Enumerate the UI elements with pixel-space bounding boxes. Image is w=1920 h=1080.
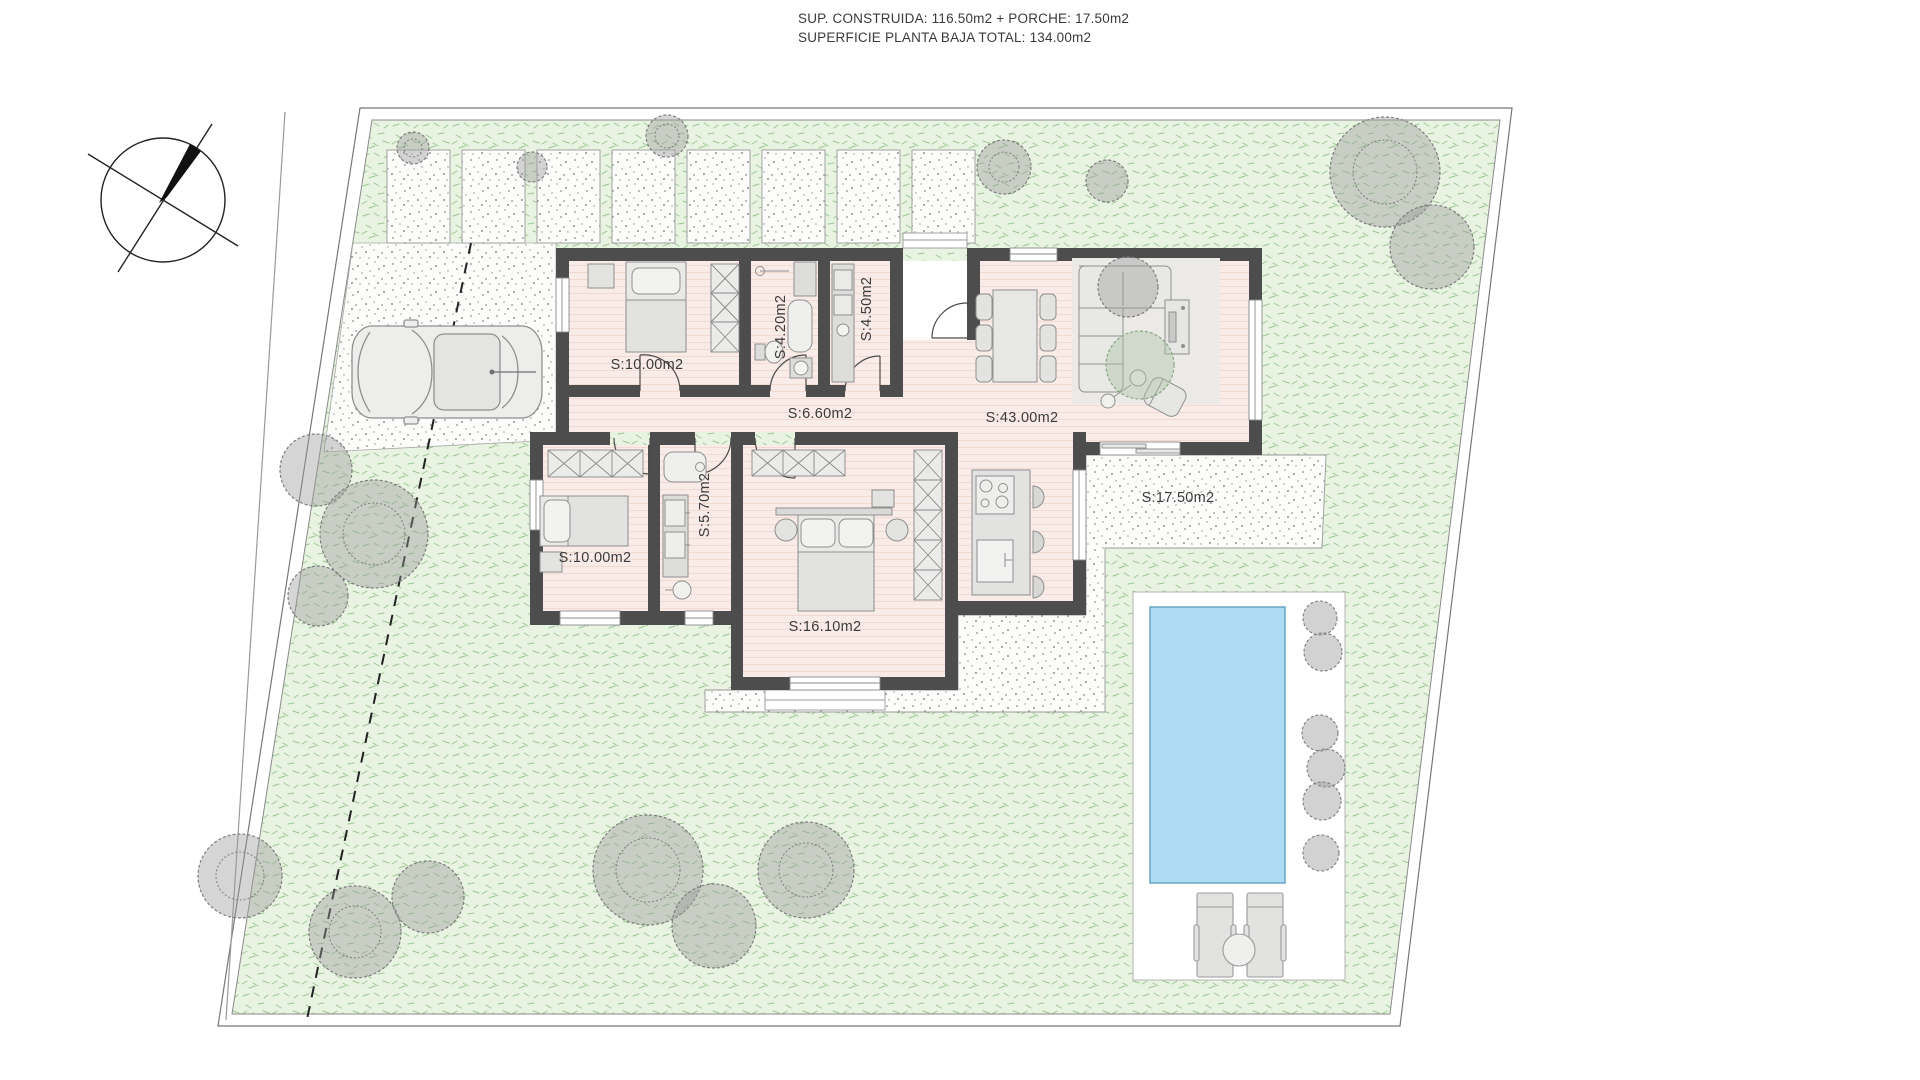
north-compass-icon [88, 124, 238, 272]
car-topview [352, 320, 542, 424]
room-label-laundry: S:4.50m2 [859, 277, 875, 341]
wardrobe-master-top [752, 450, 845, 476]
room-label-bedroom-1: S:10.00m2 [611, 357, 684, 373]
room-label-porch: S:17.50m2 [1142, 490, 1215, 506]
title-line-1: SUP. CONSTRUIDA: 116.50m2 + PORCHE: 17.5… [798, 10, 1129, 29]
wardrobe-bedroom-1 [711, 264, 739, 352]
tv-unit [1165, 300, 1189, 354]
room-label-bathroom-1: S:4.20m2 [773, 295, 789, 359]
laundry-counter [832, 264, 854, 382]
dining-table-chairs [976, 290, 1056, 382]
room-label-living: S:43.00m2 [986, 410, 1059, 426]
entry-porch [903, 261, 967, 340]
site-plan-canvas: SUP. CONSTRUIDA: 116.50m2 + PORCHE: 17.5… [0, 0, 1920, 1080]
pool-water [1150, 607, 1285, 883]
title-line-2: SUPERFICIE PLANTA BAJA TOTAL: 134.00m2 [798, 29, 1129, 48]
room-label-bedroom-2: S:10.00m2 [559, 550, 632, 566]
kitchen-island [972, 470, 1044, 598]
wardrobe-master-side [914, 450, 942, 600]
room-label-hallway: S:6.60m2 [788, 406, 852, 422]
plan-title-block: SUP. CONSTRUIDA: 116.50m2 + PORCHE: 17.5… [798, 10, 1129, 48]
floor-plan-drawing [0, 0, 1920, 1080]
room-label-master-bedroom: S:16.10m2 [789, 619, 862, 635]
pool-side-table [1223, 934, 1255, 966]
room-label-bathroom-2: S:5.70m2 [697, 473, 713, 537]
wardrobe-bedroom-2 [548, 450, 643, 477]
